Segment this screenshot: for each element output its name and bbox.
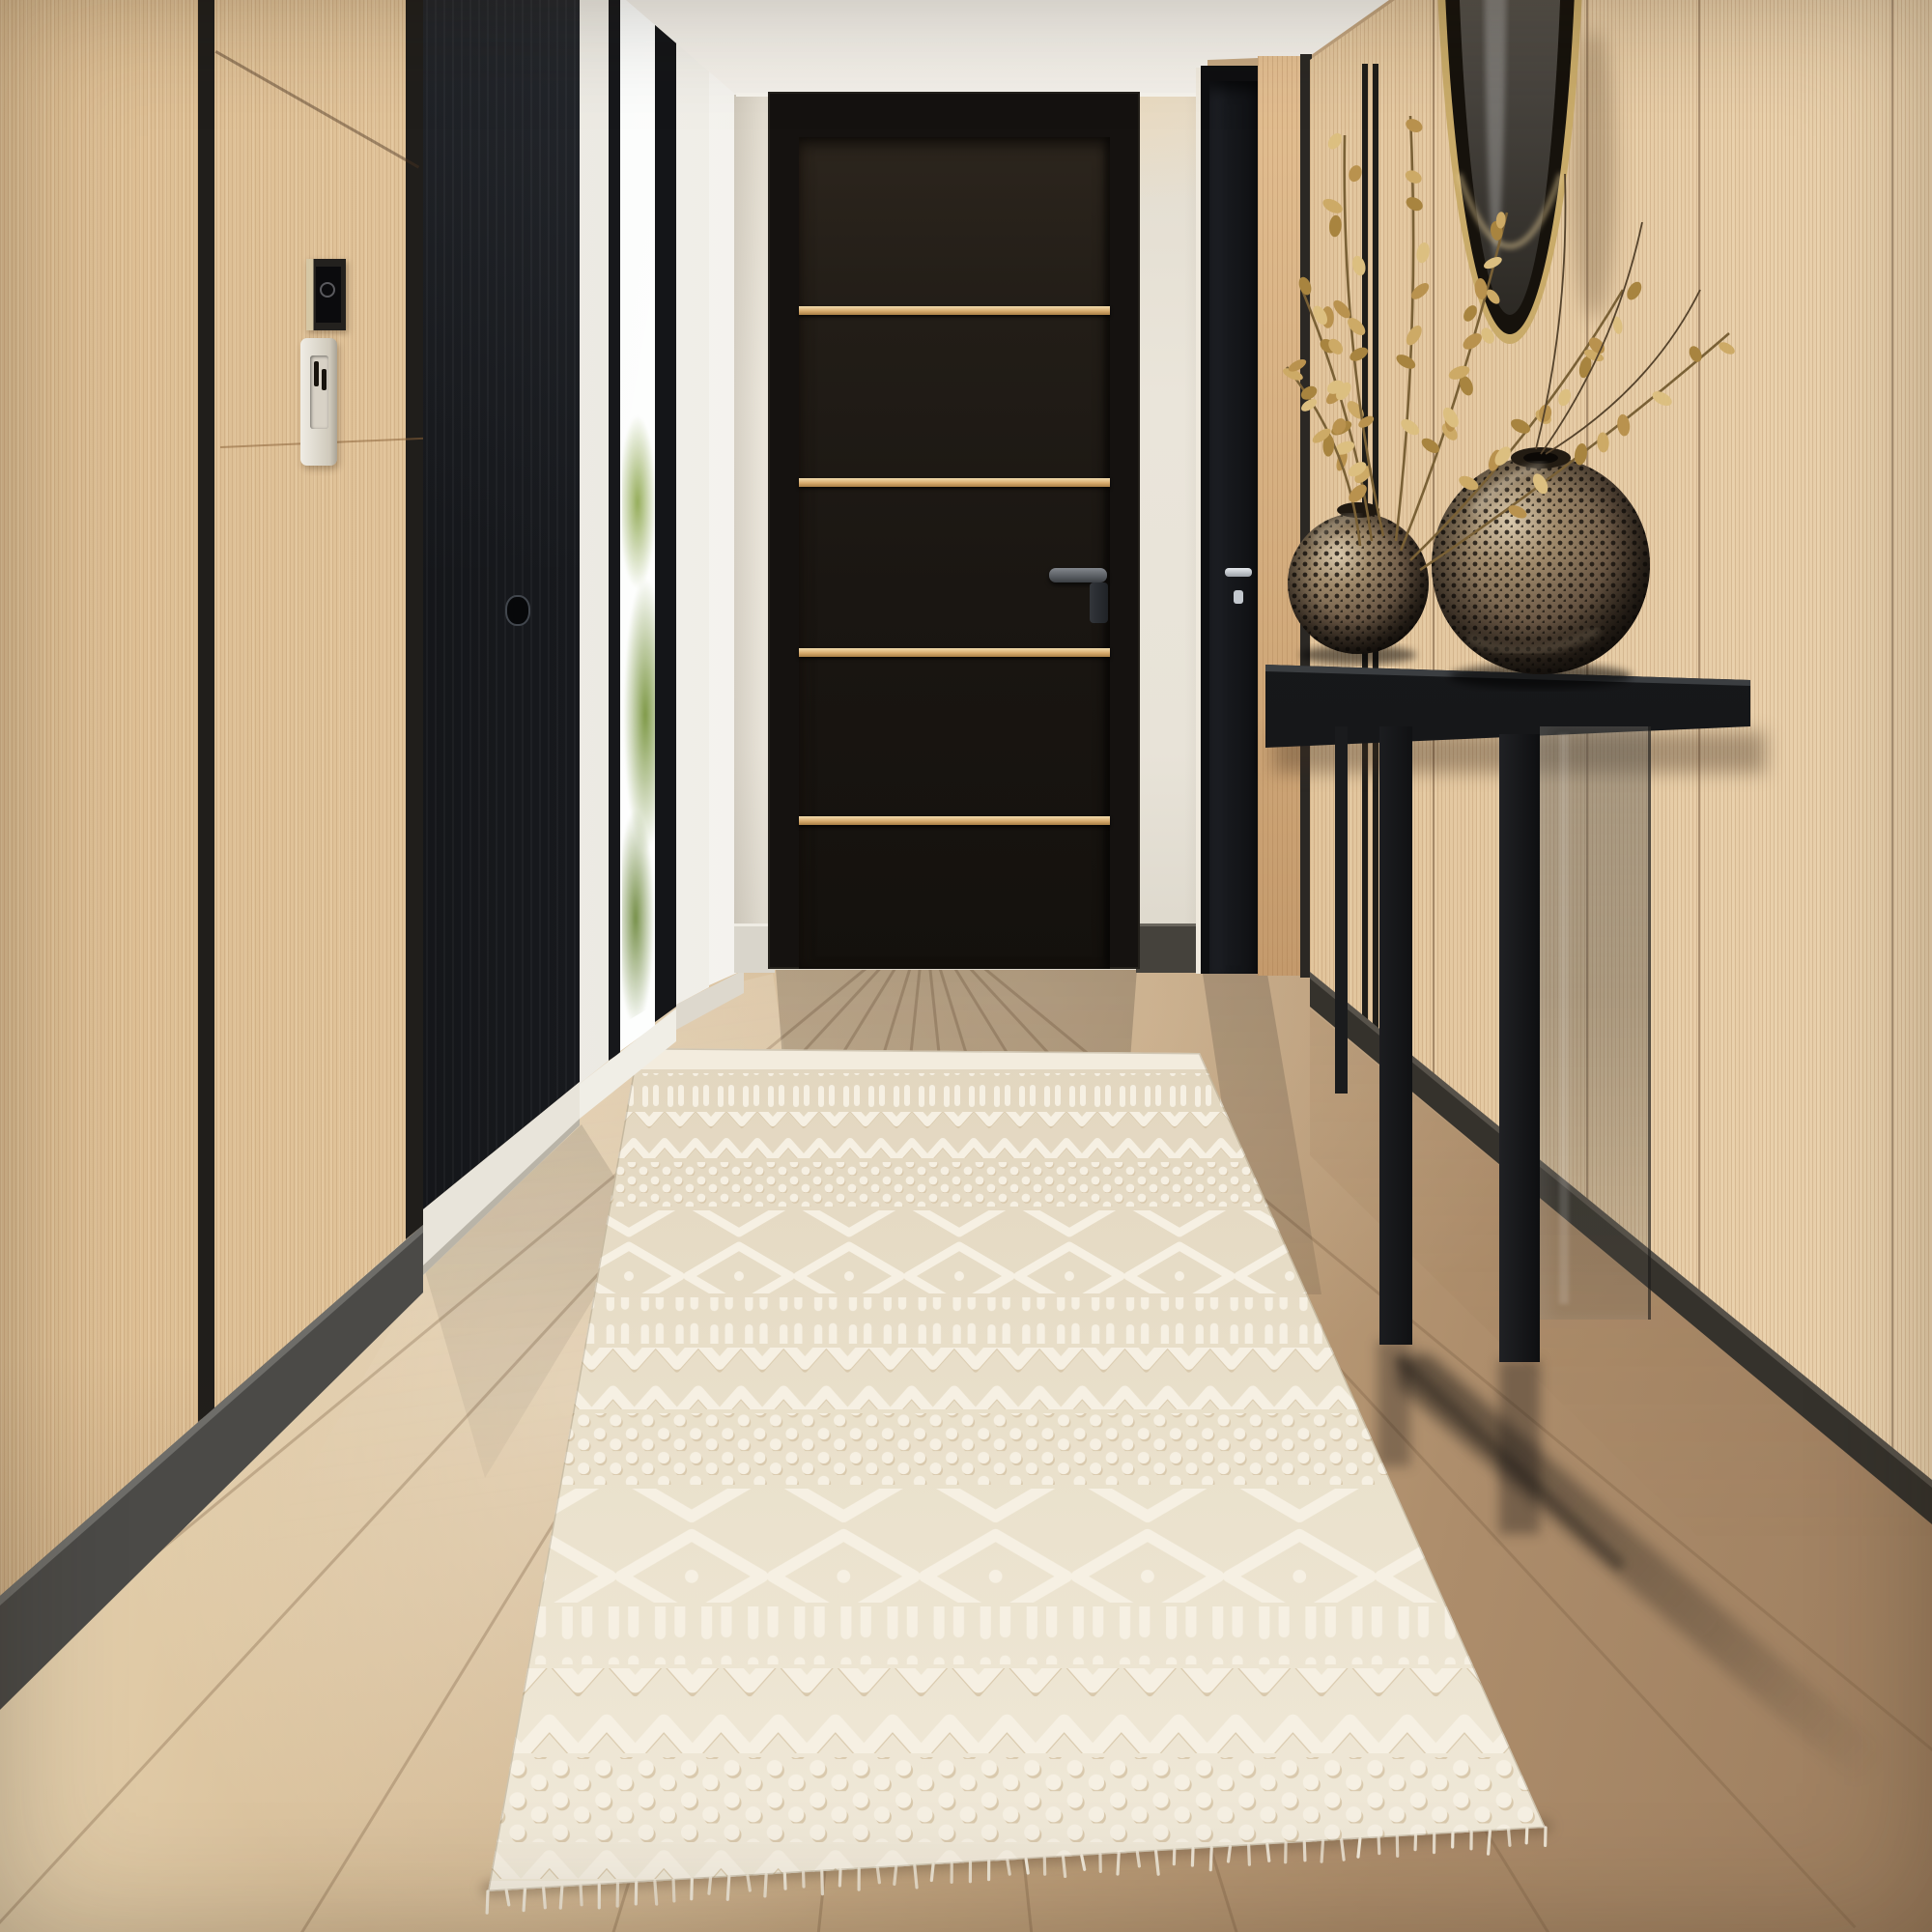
fringe-tassel bbox=[748, 1876, 750, 1890]
fringe-tassel bbox=[673, 1880, 674, 1900]
console-leg-far bbox=[1335, 726, 1348, 1094]
fringe-tassel bbox=[1342, 1840, 1344, 1860]
foliage-leaf bbox=[1687, 344, 1704, 364]
hallway-photo bbox=[0, 0, 1932, 1932]
fringe-tassel bbox=[1064, 1857, 1065, 1876]
foliage-leaf bbox=[1325, 130, 1345, 152]
fringe-tassel bbox=[839, 1870, 840, 1886]
foliage-leaf bbox=[1394, 352, 1418, 372]
foliage-leaf bbox=[1321, 196, 1345, 216]
fringe-tassel bbox=[784, 1873, 785, 1889]
fringe-tassel bbox=[1321, 1841, 1322, 1861]
door-gold-stripe bbox=[799, 648, 1110, 657]
foliage-leaf bbox=[1461, 303, 1479, 325]
switch-glyph-icon bbox=[314, 361, 319, 386]
fringe-tassel bbox=[1137, 1852, 1139, 1865]
foliage-leaf bbox=[1404, 323, 1425, 348]
foliage-leaf bbox=[1345, 315, 1369, 338]
fringe-tassel bbox=[1118, 1854, 1119, 1874]
fringe-tassel bbox=[1210, 1848, 1211, 1870]
rug-band-dash bbox=[454, 1606, 1575, 1664]
fringe-tassel bbox=[1156, 1851, 1159, 1874]
fringe-tassel bbox=[931, 1864, 933, 1880]
fringe-tassel bbox=[1267, 1844, 1269, 1861]
foliage-leaf bbox=[1347, 163, 1364, 184]
wood-seam bbox=[1891, 0, 1893, 1546]
fringe-tassel bbox=[544, 1889, 546, 1908]
fringe-tassel bbox=[765, 1875, 766, 1896]
fringe-tassel bbox=[560, 1887, 562, 1908]
foliage-leaf bbox=[1296, 275, 1313, 297]
fringe-tassel bbox=[727, 1877, 728, 1899]
switch-glyph-icon-2 bbox=[322, 369, 327, 390]
console-leg bbox=[1379, 726, 1412, 1345]
cabinet-keyhole bbox=[505, 595, 530, 626]
door-gold-stripe bbox=[799, 816, 1110, 825]
foliage-leaf bbox=[1509, 416, 1533, 437]
foliage-leaf bbox=[1348, 345, 1370, 364]
foliage-leaf bbox=[1398, 416, 1422, 439]
rug-band-zig bbox=[454, 1668, 1575, 1753]
foliage-leaf bbox=[1650, 388, 1674, 409]
door-gold-stripe bbox=[799, 306, 1110, 315]
fringe-tassel bbox=[877, 1868, 879, 1883]
foliage-leaf bbox=[1530, 471, 1551, 497]
fringe-tassel bbox=[1082, 1856, 1085, 1869]
foliage-leaf bbox=[1350, 254, 1368, 277]
foliage-leaf bbox=[1328, 214, 1342, 238]
fringe-tassel bbox=[1489, 1831, 1491, 1854]
fringe-tassel bbox=[1509, 1830, 1510, 1845]
keypad-camera-icon bbox=[320, 282, 335, 298]
foliage-leaf bbox=[1573, 442, 1588, 466]
foliage-leaf bbox=[1404, 116, 1425, 134]
fringe-tassel bbox=[1526, 1829, 1527, 1843]
foliage-leaf bbox=[1415, 241, 1432, 265]
foliage-leaf bbox=[1556, 387, 1573, 408]
foliage-leaf bbox=[1506, 502, 1528, 521]
door-gold-stripe bbox=[799, 478, 1110, 487]
fringe-tassel bbox=[1192, 1849, 1193, 1865]
fringe-tassel bbox=[1358, 1839, 1360, 1858]
fringe-tassel bbox=[915, 1865, 917, 1888]
console-glass-panel bbox=[1540, 726, 1651, 1320]
fringe-tassel bbox=[524, 1889, 525, 1911]
fringe-tassel bbox=[581, 1886, 582, 1905]
rug-band-dia bbox=[454, 1489, 1575, 1603]
switch-slot bbox=[310, 355, 328, 429]
foliage-leaf bbox=[1461, 330, 1485, 353]
foliage-leaf bbox=[1404, 194, 1425, 213]
console-leg-front bbox=[1499, 734, 1540, 1362]
fringe-tassel bbox=[895, 1867, 896, 1885]
fringe-tassel bbox=[1304, 1842, 1305, 1861]
fringe-tassel bbox=[655, 1882, 657, 1904]
fringe-tassel bbox=[1228, 1847, 1230, 1861]
fringe-tassel bbox=[1008, 1861, 1009, 1875]
fringe-tassel bbox=[822, 1871, 823, 1893]
rug-band-peb bbox=[454, 1757, 1575, 1842]
main-door-lock bbox=[1090, 582, 1108, 623]
fringe-tassel bbox=[1249, 1846, 1250, 1865]
fringe-tassel bbox=[1378, 1837, 1379, 1853]
dried-gold-foliage bbox=[1227, 39, 1826, 638]
rug-band-zig bbox=[454, 1846, 1575, 1879]
rug-band-zig bbox=[454, 1348, 1575, 1409]
fringe-tassel bbox=[506, 1890, 509, 1905]
rug-band-peb bbox=[454, 1413, 1575, 1485]
fringe-tassel bbox=[692, 1879, 693, 1898]
foliage-branch bbox=[1287, 367, 1360, 546]
main-door bbox=[799, 137, 1110, 969]
fringe-tassel bbox=[1026, 1859, 1028, 1873]
console-glass-streak bbox=[1559, 734, 1569, 1304]
fringe-tassel bbox=[487, 1891, 488, 1913]
main-door-handle bbox=[1049, 568, 1107, 582]
fringe-tassel bbox=[709, 1878, 711, 1893]
foliage-twig bbox=[1536, 174, 1565, 449]
